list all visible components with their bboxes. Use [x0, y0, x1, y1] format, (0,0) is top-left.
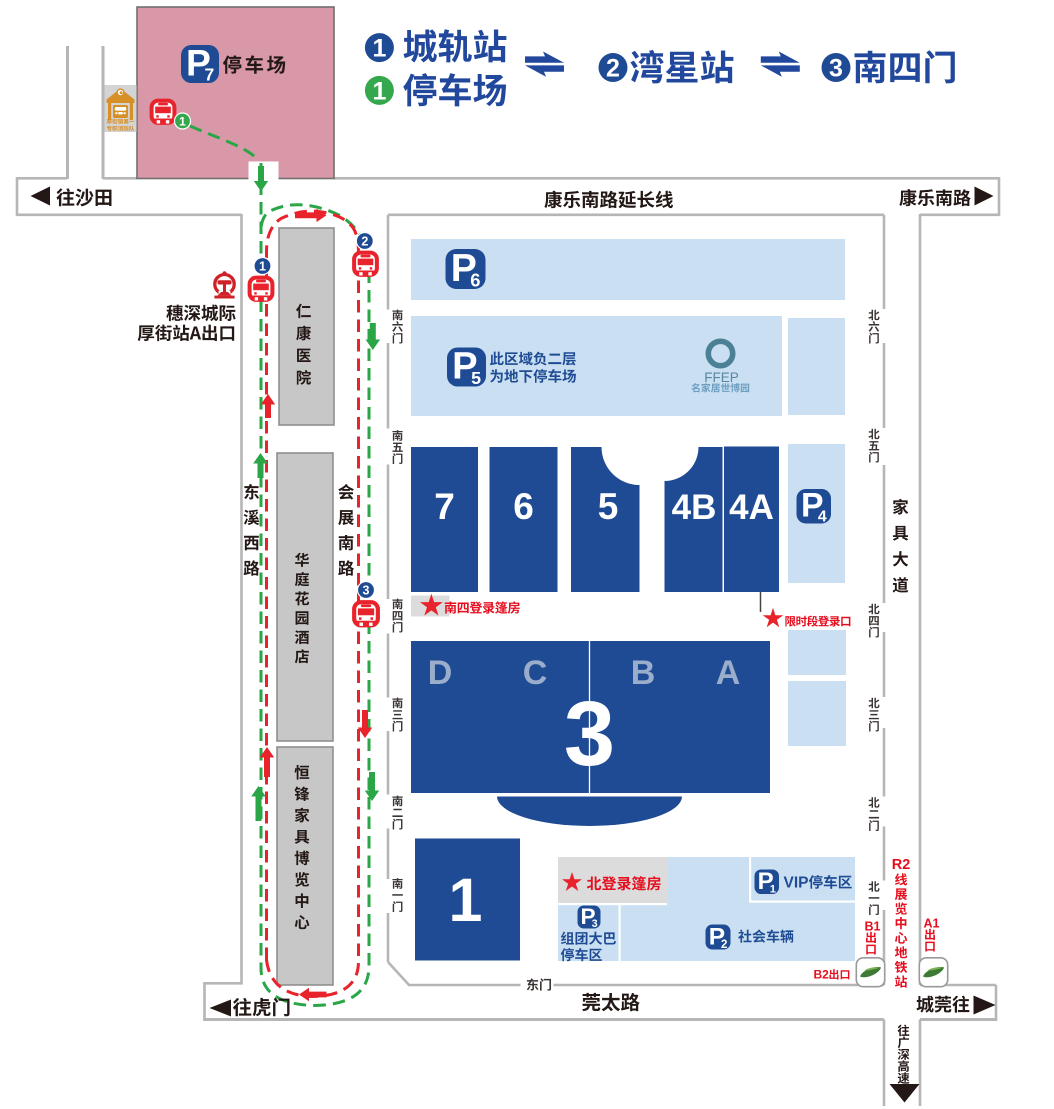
- svg-text:A: A: [716, 654, 741, 692]
- svg-text:1: 1: [179, 114, 186, 128]
- svg-text:2: 2: [721, 939, 727, 951]
- svg-text:7: 7: [205, 65, 215, 85]
- svg-text:FFEP: FFEP: [704, 370, 739, 385]
- svg-text:B: B: [631, 654, 656, 692]
- svg-text:VIP: VIP: [784, 875, 809, 892]
- svg-text:1: 1: [770, 884, 776, 896]
- svg-text:1: 1: [372, 77, 386, 105]
- svg-text:B2: B2: [814, 968, 830, 982]
- svg-text:1: 1: [372, 35, 386, 63]
- svg-text:A1: A1: [924, 917, 940, 931]
- svg-text:C: C: [523, 654, 548, 692]
- svg-text:2: 2: [606, 55, 620, 83]
- svg-text:4B: 4B: [672, 488, 717, 527]
- svg-text:2: 2: [361, 235, 368, 249]
- svg-text:3: 3: [363, 584, 370, 598]
- svg-text:1: 1: [449, 866, 483, 934]
- svg-text:B1: B1: [865, 920, 881, 934]
- svg-text:6: 6: [513, 486, 534, 527]
- svg-text:5: 5: [598, 486, 619, 527]
- svg-text:4A: 4A: [729, 488, 774, 527]
- svg-text:1: 1: [259, 260, 266, 274]
- svg-text:3: 3: [564, 683, 615, 785]
- svg-text:5: 5: [471, 368, 481, 388]
- svg-text:3: 3: [829, 55, 843, 83]
- svg-text:6: 6: [470, 270, 480, 291]
- svg-text:3: 3: [592, 918, 598, 930]
- svg-text:4: 4: [818, 508, 827, 525]
- svg-text:7: 7: [434, 486, 455, 527]
- svg-text:R2: R2: [892, 857, 911, 873]
- svg-text:D: D: [428, 654, 453, 692]
